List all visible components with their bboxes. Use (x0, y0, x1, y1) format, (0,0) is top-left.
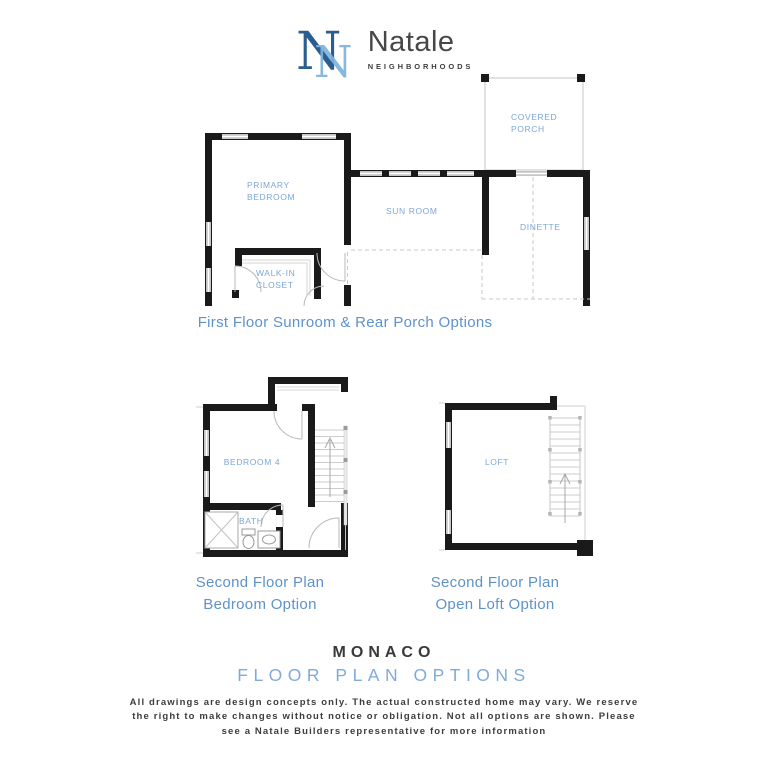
caption-line: Second Floor Plan (170, 572, 350, 594)
brand-tagline: NEIGHBORHOODS (368, 62, 474, 71)
room-label-walk-in-closet: WALK-IN CLOSET (256, 268, 308, 292)
corner-ticks (439, 403, 445, 550)
walls-group (445, 396, 593, 556)
room-label-sun-room: SUN ROOM (386, 206, 438, 218)
disclaimer: All drawings are design concepts only. T… (0, 696, 768, 739)
second-floor-loft-caption: Second Floor Plan Open Loft Option (405, 572, 585, 616)
caption-line: Bedroom Option (170, 594, 350, 616)
toilet-fixture (242, 529, 255, 549)
second-floor-bedroom-caption: Second Floor Plan Bedroom Option (170, 572, 350, 616)
sink-fixture (258, 531, 280, 548)
floor-plan-flyer: N N Natale NEIGHBORHOODS (0, 0, 768, 768)
logo-text: Natale NEIGHBORHOODS (368, 22, 474, 71)
plan-name-heading: MONACO (0, 644, 768, 662)
room-label-bath: BATH (239, 516, 263, 528)
second-floor-loft-drawing (435, 390, 600, 568)
second-floor-bedroom-drawing (195, 372, 360, 572)
disclaimer-line: the right to make changes without notice… (0, 710, 768, 724)
plan-subtitle: FLOOR PLAN OPTIONS (0, 665, 768, 686)
first-floor-plan: PRIMARY BEDROOM SUN ROOM COVERED PORCH D… (190, 72, 600, 306)
room-label-dinette: DINETTE (520, 222, 561, 234)
corner-ticks (196, 407, 203, 553)
caption-line: Open Loft Option (405, 594, 585, 616)
second-floor-bedroom-plan: BEDROOM 4 BATH (195, 372, 360, 572)
logo: N N Natale NEIGHBORHOODS (0, 22, 768, 78)
first-floor-caption: First Floor Sunroom & Rear Porch Options (150, 312, 540, 334)
second-floor-loft-plan: LOFT (435, 390, 600, 568)
brand-name: Natale (368, 28, 474, 57)
door-arcs-group (261, 411, 339, 548)
shower-fixture (205, 512, 238, 548)
disclaimer-line: see a Natale Builders representative for… (0, 725, 768, 739)
disclaimer-line: All drawings are design concepts only. T… (0, 696, 768, 710)
closet-shelf-lines (277, 387, 339, 390)
room-label-primary-bedroom: PRIMARY BEDROOM (247, 180, 311, 204)
caption-line: Second Floor Plan (405, 572, 585, 594)
rail-lines (557, 406, 585, 540)
natale-monogram-icon: N N (295, 22, 359, 78)
room-label-covered-porch: COVERED PORCH (511, 112, 569, 136)
stairs-group (548, 416, 582, 523)
room-label-bedroom-4: BEDROOM 4 (212, 457, 292, 469)
room-label-loft: LOFT (472, 457, 522, 469)
dashed-lines-group (348, 177, 591, 299)
